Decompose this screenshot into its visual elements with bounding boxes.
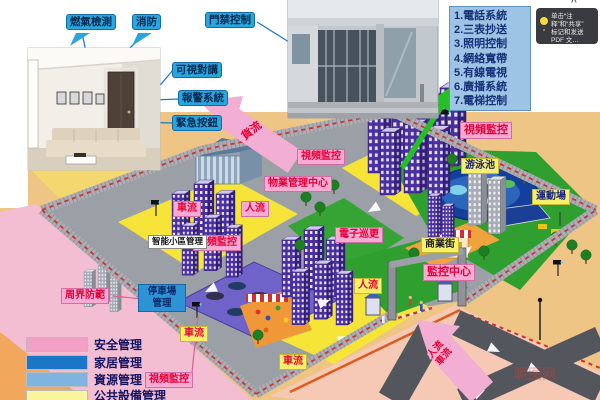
lightbulb-icon [540,17,548,25]
callout-emergency-button: 緊急按鈕 [172,115,222,131]
watermark: 昵图网 [514,364,556,384]
systems-item: 4.網絡寬帶 [454,52,526,66]
building-systems-list: 1.電話系統 2.三表抄送 3.照明控制 4.網絡寬帶 5.有線電視 6.廣播系… [449,6,531,111]
legend-label: 安全管理 [94,336,142,353]
callout-fire-protection: 消防 [132,14,161,30]
legend-swatch [26,337,88,352]
tooltip-line: 标记和发送 PDF 文… [551,29,596,45]
legend-item-home: 家居管理 [26,354,142,371]
label-people-flow: 人流 [241,201,269,217]
smart-community-diagram: 燃氣檢測 消防 門禁控制 可視對講 報警系統 緊急按鈕 1.電話系統 2.三表抄… [0,0,600,400]
room-photo [28,48,160,170]
label-video-surveillance-right: 視頻監控 [460,122,512,139]
label-property-mgmt-center: 物業管理中心 [264,176,332,192]
callout-alarm-system: 報警系統 [178,90,228,106]
tooltip-line: 单击“注释”和“共享” [551,13,596,29]
entrance-photo [288,0,438,118]
label-swimming-pool: 游泳池 [461,158,499,174]
label-commercial-street: 商業街 [421,237,459,253]
callout-access-control: 門禁控制 [205,12,255,28]
label-parking-mgmt: 停車場 管理 [138,284,186,312]
legend-item-resource: 資源管理 [26,371,142,388]
callout-video-intercom: 可視對講 [172,62,222,78]
legend-label: 公共設備管理 [94,387,166,400]
label-vehicle-flow: 車流 [173,201,201,217]
systems-item: 1.電話系統 [454,9,526,23]
legend-swatch [26,390,88,400]
legend-item-security: 安全管理 [26,336,142,353]
label-vehicle-flow-3: 車流 [279,354,307,370]
pdf-hint-tooltip: 单击“注释”和“共享” 标记和发送 PDF 文… [536,8,598,44]
systems-item: 7.電梯控制 [454,94,526,108]
label-people-flow-2: 人流 [354,278,382,294]
systems-item: 2.三表抄送 [454,23,526,37]
systems-item: 3.照明控制 [454,37,526,51]
systems-item: 5.有線電視 [454,66,526,80]
legend-item-public-equipment: 公共設備管理 [26,387,166,400]
label-smart-community-mgmt: 智能小區管理 [148,235,207,249]
systems-item: 6.廣播系統 [454,80,526,94]
legend-label: 資源管理 [94,371,142,388]
label-monitoring-center: 監控中心 [423,264,475,281]
label-video-surveillance-top: 視頻監控 [297,149,345,165]
parking-mgmt-line: 停車場 [142,286,182,298]
label-electronic-patrol: 電子巡更 [335,227,383,243]
label-vehicle-flow-2: 車流 [180,326,208,342]
label-perimeter-defense: 周界防範 [61,288,109,304]
label-video-surveillance-bottom: 視頻監控 [145,372,193,388]
legend-swatch [26,355,88,370]
callout-gas-detection: 燃氣檢測 [66,14,116,30]
legend-swatch [26,372,88,387]
label-sports-field: 運動場 [532,189,570,205]
tooltip-collapse-chevron[interactable]: ^ [571,0,577,8]
legend-label: 家居管理 [94,354,142,371]
parking-mgmt-line: 管理 [142,298,182,310]
